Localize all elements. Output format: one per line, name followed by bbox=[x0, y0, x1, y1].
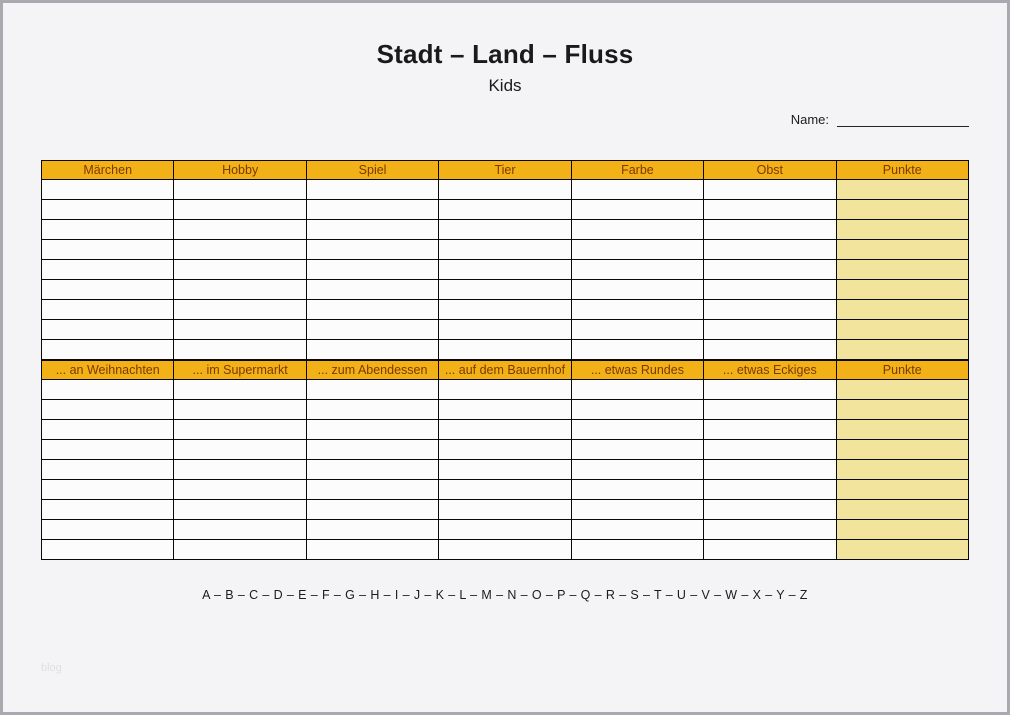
alphabet-strip: A – B – C – D – E – F – G – H – I – J – … bbox=[3, 588, 1007, 602]
answer-cell bbox=[571, 400, 703, 420]
answer-cell bbox=[42, 240, 174, 260]
points-cell bbox=[836, 420, 968, 440]
answer-cell bbox=[439, 180, 571, 200]
answer-cell bbox=[439, 340, 571, 360]
answer-cell bbox=[571, 280, 703, 300]
points-cell bbox=[836, 220, 968, 240]
answer-cell bbox=[439, 500, 571, 520]
answer-cell bbox=[704, 260, 836, 280]
column-header: Tier bbox=[439, 161, 571, 180]
points-cell bbox=[836, 240, 968, 260]
answer-cell bbox=[42, 220, 174, 240]
answer-cell bbox=[571, 260, 703, 280]
table-row bbox=[42, 240, 969, 260]
answer-cell bbox=[704, 300, 836, 320]
name-label: Name: bbox=[791, 112, 829, 127]
name-row: Name: bbox=[41, 112, 969, 130]
answer-cell bbox=[704, 480, 836, 500]
answer-cell bbox=[174, 460, 306, 480]
page-title: Stadt – Land – Fluss bbox=[3, 39, 1007, 70]
points-column-header: Punkte bbox=[836, 361, 968, 380]
table-row bbox=[42, 420, 969, 440]
table-row bbox=[42, 200, 969, 220]
name-line bbox=[837, 114, 969, 127]
answer-table-round-1: MärchenHobbySpielTierFarbeObstPunkte bbox=[41, 160, 969, 360]
answer-cell bbox=[571, 300, 703, 320]
points-cell bbox=[836, 440, 968, 460]
answer-cell bbox=[439, 520, 571, 540]
answer-cell bbox=[42, 380, 174, 400]
answer-cell bbox=[704, 460, 836, 480]
column-header: Farbe bbox=[571, 161, 703, 180]
answer-cell bbox=[42, 260, 174, 280]
answer-cell bbox=[439, 380, 571, 400]
table-row bbox=[42, 180, 969, 200]
answer-cell bbox=[704, 340, 836, 360]
answer-table-round-2: ... an Weihnachten... im Supermarkt... z… bbox=[41, 360, 969, 560]
answer-cell bbox=[439, 300, 571, 320]
answer-cell bbox=[571, 180, 703, 200]
answer-cell bbox=[42, 540, 174, 560]
answer-cell bbox=[174, 400, 306, 420]
answer-cell bbox=[571, 420, 703, 440]
answer-cell bbox=[42, 340, 174, 360]
column-header: Märchen bbox=[42, 161, 174, 180]
table-row bbox=[42, 280, 969, 300]
points-cell bbox=[836, 480, 968, 500]
answer-cell bbox=[42, 420, 174, 440]
answer-cell bbox=[42, 440, 174, 460]
answer-cell bbox=[174, 320, 306, 340]
answer-cell bbox=[704, 220, 836, 240]
points-cell bbox=[836, 200, 968, 220]
answer-cell bbox=[306, 300, 438, 320]
answer-cell bbox=[42, 400, 174, 420]
answer-cell bbox=[439, 400, 571, 420]
answer-cell bbox=[306, 180, 438, 200]
points-cell bbox=[836, 540, 968, 560]
answer-cell bbox=[174, 520, 306, 540]
answer-cell bbox=[571, 520, 703, 540]
answer-cell bbox=[42, 180, 174, 200]
watermark: blog bbox=[41, 662, 62, 674]
answer-cell bbox=[571, 540, 703, 560]
answer-cell bbox=[174, 180, 306, 200]
table-row bbox=[42, 320, 969, 340]
points-column-header: Punkte bbox=[836, 161, 968, 180]
column-header: ... etwas Eckiges bbox=[704, 361, 836, 380]
table-row bbox=[42, 460, 969, 480]
answer-cell bbox=[174, 540, 306, 560]
answer-cell bbox=[439, 200, 571, 220]
answer-cell bbox=[704, 200, 836, 220]
answer-cell bbox=[306, 420, 438, 440]
answer-cell bbox=[571, 480, 703, 500]
column-header: Hobby bbox=[174, 161, 306, 180]
column-header: ... an Weihnachten bbox=[42, 361, 174, 380]
answer-cell bbox=[174, 340, 306, 360]
answer-cell bbox=[306, 320, 438, 340]
table-header-row: MärchenHobbySpielTierFarbeObstPunkte bbox=[42, 161, 969, 180]
answer-cell bbox=[174, 200, 306, 220]
answer-cell bbox=[704, 280, 836, 300]
answer-cell bbox=[571, 440, 703, 460]
answer-cell bbox=[704, 420, 836, 440]
answer-cell bbox=[704, 440, 836, 460]
answer-cell bbox=[42, 520, 174, 540]
points-cell bbox=[836, 300, 968, 320]
answer-cell bbox=[306, 260, 438, 280]
table-row bbox=[42, 340, 969, 360]
answer-cell bbox=[439, 220, 571, 240]
answer-cell bbox=[306, 280, 438, 300]
answer-cell bbox=[439, 240, 571, 260]
answer-cell bbox=[42, 320, 174, 340]
worksheet-page: Stadt – Land – Fluss Kids Name: MärchenH… bbox=[0, 0, 1010, 715]
table-row bbox=[42, 500, 969, 520]
answer-cell bbox=[174, 280, 306, 300]
points-cell bbox=[836, 260, 968, 280]
column-header: Obst bbox=[704, 161, 836, 180]
table-row bbox=[42, 440, 969, 460]
answer-cell bbox=[42, 480, 174, 500]
answer-cell bbox=[42, 280, 174, 300]
points-cell bbox=[836, 320, 968, 340]
answer-cell bbox=[439, 280, 571, 300]
answer-cell bbox=[174, 260, 306, 280]
answer-cell bbox=[571, 240, 703, 260]
answer-cell bbox=[571, 380, 703, 400]
answer-cell bbox=[306, 460, 438, 480]
column-header: ... auf dem Bauernhof bbox=[439, 361, 571, 380]
answer-cell bbox=[571, 320, 703, 340]
answer-cell bbox=[174, 380, 306, 400]
table-row bbox=[42, 300, 969, 320]
answer-cell bbox=[571, 460, 703, 480]
answer-cell bbox=[174, 480, 306, 500]
answer-cell bbox=[439, 480, 571, 500]
answer-cell bbox=[306, 540, 438, 560]
table-row bbox=[42, 520, 969, 540]
answer-cell bbox=[174, 440, 306, 460]
answer-cell bbox=[42, 300, 174, 320]
points-cell bbox=[836, 460, 968, 480]
table-row bbox=[42, 380, 969, 400]
answer-cell bbox=[571, 500, 703, 520]
answer-cell bbox=[306, 500, 438, 520]
column-header: Spiel bbox=[306, 161, 438, 180]
answer-cell bbox=[306, 480, 438, 500]
answer-cell bbox=[174, 420, 306, 440]
column-header: ... zum Abendessen bbox=[306, 361, 438, 380]
table-row bbox=[42, 400, 969, 420]
answer-cell bbox=[439, 260, 571, 280]
answer-cell bbox=[174, 500, 306, 520]
answer-cell bbox=[174, 300, 306, 320]
answer-cell bbox=[571, 200, 703, 220]
answer-cell bbox=[439, 320, 571, 340]
answer-cell bbox=[704, 320, 836, 340]
answer-cell bbox=[704, 380, 836, 400]
answer-cell bbox=[704, 400, 836, 420]
answer-cell bbox=[174, 220, 306, 240]
points-cell bbox=[836, 340, 968, 360]
answer-cell bbox=[306, 440, 438, 460]
points-cell bbox=[836, 500, 968, 520]
answer-cell bbox=[306, 340, 438, 360]
column-header: ... etwas Rundes bbox=[571, 361, 703, 380]
points-cell bbox=[836, 400, 968, 420]
answer-cell bbox=[42, 460, 174, 480]
answer-cell bbox=[306, 220, 438, 240]
answer-cell bbox=[306, 520, 438, 540]
answer-cell bbox=[306, 400, 438, 420]
table-row bbox=[42, 220, 969, 240]
answer-cell bbox=[571, 340, 703, 360]
answer-cell bbox=[439, 420, 571, 440]
column-header: ... im Supermarkt bbox=[174, 361, 306, 380]
answer-cell bbox=[439, 540, 571, 560]
answer-cell bbox=[704, 520, 836, 540]
table-header-row: ... an Weihnachten... im Supermarkt... z… bbox=[42, 361, 969, 380]
points-cell bbox=[836, 280, 968, 300]
table-row bbox=[42, 260, 969, 280]
points-cell bbox=[836, 380, 968, 400]
answer-cell bbox=[571, 220, 703, 240]
answer-cell bbox=[174, 240, 306, 260]
answer-cell bbox=[704, 180, 836, 200]
points-cell bbox=[836, 520, 968, 540]
answer-cell bbox=[704, 500, 836, 520]
table-row bbox=[42, 540, 969, 560]
answer-cell bbox=[306, 200, 438, 220]
table-row bbox=[42, 480, 969, 500]
answer-cell bbox=[439, 460, 571, 480]
answer-cell bbox=[704, 240, 836, 260]
answer-cell bbox=[306, 380, 438, 400]
answer-cell bbox=[439, 440, 571, 460]
answer-cell bbox=[306, 240, 438, 260]
answer-cell bbox=[42, 200, 174, 220]
points-cell bbox=[836, 180, 968, 200]
page-subtitle: Kids bbox=[3, 76, 1007, 96]
answer-cell bbox=[704, 540, 836, 560]
answer-cell bbox=[42, 500, 174, 520]
